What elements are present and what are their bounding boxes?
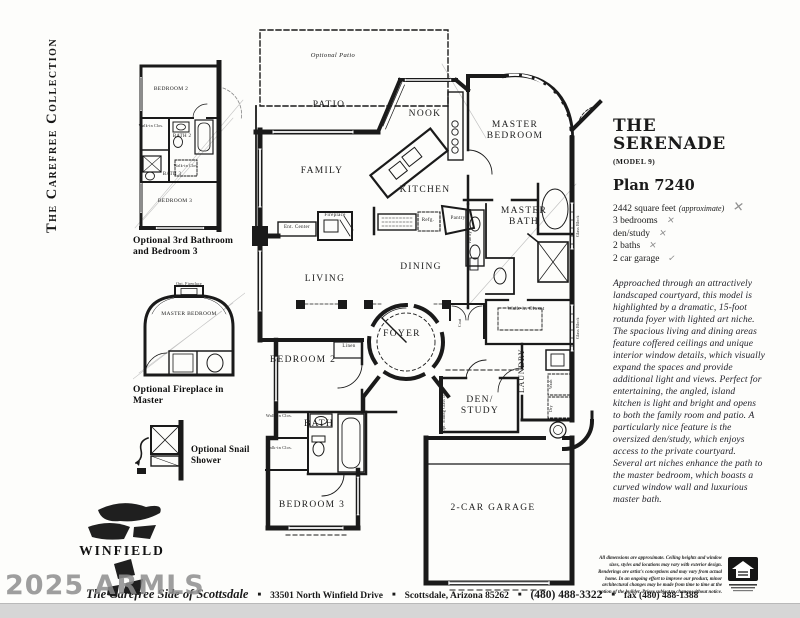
scanner-edge-strip: [0, 603, 800, 618]
room-label-bedroom3: BEDROOM 3: [274, 500, 350, 511]
room-label-bath2-optional: BATH 2: [169, 134, 195, 140]
feature-item: 3 bedrooms✕: [613, 215, 793, 228]
room-label-vanity: Vanity: [467, 216, 479, 260]
room-label-garage: 2-CAR GARAGE: [438, 503, 548, 514]
plan-title-line2: SERENADE: [613, 136, 793, 154]
pencil-mark: ✕: [648, 240, 657, 252]
footer-separ ator-icon: ■: [518, 592, 522, 598]
pencil-mark: ✕: [658, 227, 667, 239]
optional-plan-3rd-bathroom: BEDROOM 2 BATH 2 Walk-in Clos. BATH 3 Wa…: [133, 60, 246, 260]
room-label-glass-block-2: Glass Block: [576, 302, 586, 354]
footer-separator-icon: ■: [392, 592, 396, 598]
pencil-mark: ✕: [733, 200, 745, 213]
feature-note: (approximate): [679, 204, 724, 213]
room-label-den-study: DEN/ STUDY: [452, 395, 508, 416]
footer-street: 33501 North Winfield Drive: [270, 591, 383, 601]
pencil-mark: ✓: [668, 252, 677, 264]
footer-fax: fax (480) 488-1388: [624, 591, 698, 601]
feature-item: 2442 square feet(approximate)✕: [613, 201, 793, 216]
optional-plan-fireplace-drawing: [133, 283, 245, 381]
feature-text: 2 car garage: [613, 254, 659, 264]
room-label-coat: Coat: [458, 310, 468, 336]
room-label-dining: DINING: [381, 262, 461, 273]
room-label-patio: PATIO: [289, 100, 369, 111]
feature-list: 2442 square feet(approximate)✕ 3 bedroom…: [613, 201, 793, 266]
feature-text: 3 bedrooms: [613, 216, 658, 226]
room-label-optional-patio: Optional Patio: [293, 52, 373, 59]
room-label-bath: BATH: [297, 419, 341, 430]
room-label-family: FAMILY: [282, 166, 362, 177]
feature-item: 2 baths✕: [613, 240, 793, 253]
plan-description: Approached through an attractively lands…: [613, 279, 765, 506]
room-label-living: LIVING: [285, 274, 365, 285]
feature-item: 2 car garage✓: [613, 253, 793, 266]
room-label-linen: Linen: [334, 344, 364, 350]
room-label-bedroom2: BEDROOM 2: [268, 355, 338, 366]
room-label-bedroom3-optional: BEDROOM 3: [149, 198, 201, 204]
room-label-dry: Dry: [549, 398, 559, 419]
room-label-master-bedroom: MASTER BEDROOM: [480, 120, 550, 141]
room-label-opt-fireplace: Opt. Fireplace: [165, 282, 213, 286]
main-floorplan: Optional Patio PATIO NOOK FAMILY KITCHEN…: [246, 8, 606, 600]
footer-phone: (480) 488-3322: [530, 589, 602, 601]
room-label-walkin-master: Walk-in Closet: [496, 306, 556, 312]
room-label-wash: Wash: [549, 374, 559, 395]
footer-separator-icon: ■: [257, 592, 261, 598]
caption-optional-fireplace: Optional Fireplace in Master: [133, 385, 245, 407]
feature-item: den/study✕: [613, 228, 793, 241]
feature-text: 2442 square feet: [613, 204, 676, 214]
rotunda-foyer: [369, 305, 443, 379]
room-label-kitchen: KITCHEN: [385, 185, 465, 196]
optional-plan-fireplace: Opt. Fireplace MASTER BEDROOM Optional F…: [133, 283, 245, 413]
optional-plan-snail-shower: Optional Snail Shower: [135, 420, 255, 495]
footer-separator-icon: ■: [611, 592, 615, 598]
caption-optional-3rd-bathroom: Optional 3rd Bathroom and Bedroom 3: [133, 236, 246, 258]
info-column: THE SERENADE (MODEL 9) Plan 7240 2442 sq…: [613, 118, 793, 507]
room-label-walkin-optional-b: Walk-in Clos.: [173, 164, 199, 168]
room-label-walkin-bed2b: Walk-in Clos.: [262, 446, 296, 451]
pencil-mark: ✕: [666, 215, 675, 227]
scanned-floorplan-sheet: { "page": { "banner": "The Carefree Coll…: [0, 0, 800, 617]
room-label-ent-center: Ent. Center: [276, 225, 318, 231]
collection-banner: The Carefree Collection: [44, 26, 66, 244]
winfield-logo-wordmark: WINFIELD: [79, 543, 165, 558]
footer-city: Scottsdale, Arizona 85262: [405, 591, 509, 601]
room-label-nook: NOOK: [395, 109, 455, 120]
room-label-opt-sliding-door: Opt. Sliding Glass Door: [442, 380, 452, 440]
room-label-walkin-optional-a: Walk-in Clos.: [137, 124, 165, 128]
room-label-fireplace: Fireplace: [313, 213, 357, 219]
room-label-bedroom2-optional: BEDROOM 2: [145, 86, 197, 92]
room-label-walkin-bed2a: Walk-in Clos.: [262, 414, 296, 419]
room-label-laundry: LAUNDRY: [518, 342, 536, 400]
room-label-master-bedroom-optional: MASTER BEDROOM: [159, 311, 219, 317]
optional-plan-snail-shower-drawing: [135, 420, 187, 482]
room-label-bath3-optional: BATH 3: [159, 172, 185, 178]
caption-optional-snail-shower: Optional Snail Shower: [191, 444, 253, 465]
main-floorplan-drawing: [246, 8, 606, 600]
feature-text: den/study: [613, 229, 650, 239]
room-label-master-bath: MASTER BATH: [494, 206, 554, 227]
model-number: (MODEL 9): [613, 157, 793, 166]
plan-number: Plan 7240: [613, 177, 793, 194]
room-label-glass-block-1: Glass Block: [576, 200, 586, 252]
room-label-refrigerator: Refg.: [414, 218, 442, 224]
feature-text: 2 baths: [613, 241, 640, 251]
room-label-foyer: FOYER: [372, 329, 432, 340]
armls-watermark: 2025 ARMLS: [5, 570, 205, 601]
